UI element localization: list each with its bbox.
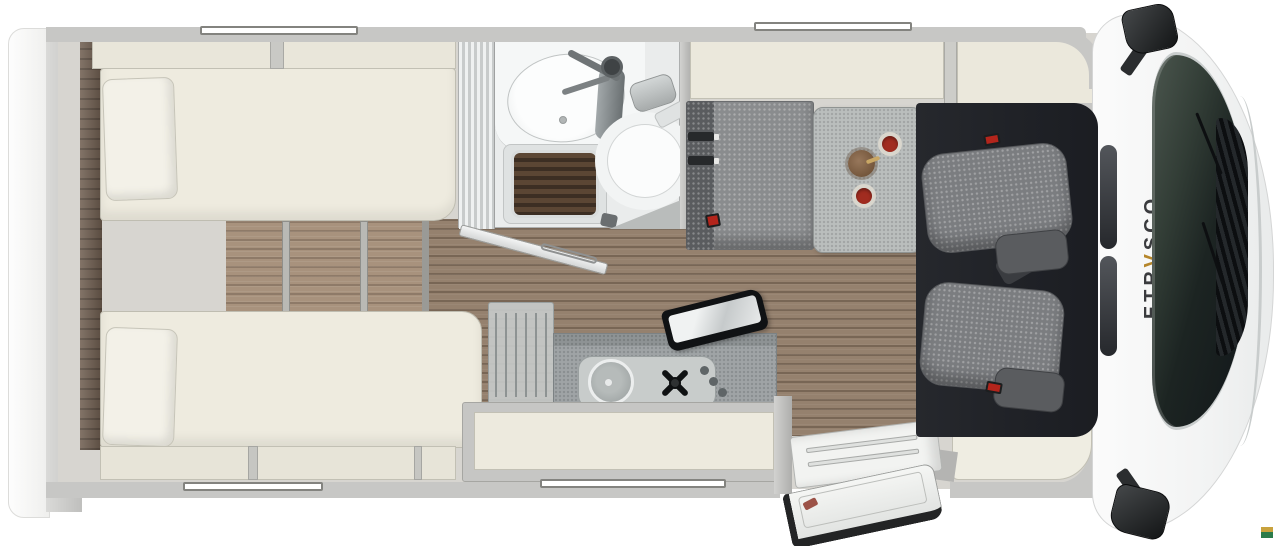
seatbelt-strap-2 xyxy=(688,156,714,165)
bathroom xyxy=(458,33,680,228)
burner-center xyxy=(669,377,681,389)
faucet-head xyxy=(601,56,623,78)
front-trim-line xyxy=(1240,96,1262,446)
red-cup-1 xyxy=(882,136,898,152)
corner-badge xyxy=(1261,527,1273,538)
overhead-locker-dinette xyxy=(690,33,944,99)
sink-drain xyxy=(604,378,613,387)
window-top-bedroom xyxy=(200,26,358,35)
toilet-lid xyxy=(607,124,683,198)
kitchen-dish-rack xyxy=(488,302,554,406)
pillow-bottom-bed xyxy=(102,327,178,447)
passenger-headrest xyxy=(994,228,1070,275)
wooden-bowl xyxy=(848,150,875,177)
burner-knob-1 xyxy=(700,366,709,375)
burner-knob-3 xyxy=(718,388,727,397)
driver-headrest xyxy=(992,366,1066,413)
bedroom-steps-floor xyxy=(226,221,428,312)
seatbelt-clip-1 xyxy=(714,134,719,140)
shower-grate xyxy=(511,150,599,218)
basin-drain xyxy=(559,116,567,124)
step-edge-wall xyxy=(422,221,429,312)
cab-roof-trim-2 xyxy=(1100,256,1117,356)
bench-belt-buckle xyxy=(705,213,721,228)
cab-roof-trim-1 xyxy=(1100,145,1117,249)
motorhome-floorplan: ETRVSCO xyxy=(0,0,1280,546)
entry-wall-stub xyxy=(774,396,792,494)
window-kitchen-groove xyxy=(540,479,726,488)
seatbelt-strap-1 xyxy=(688,132,714,141)
step-divider-right xyxy=(360,221,368,312)
sideboard-bedroom xyxy=(100,446,456,480)
sideboard-divider-1 xyxy=(248,446,258,480)
sideboard-divider-2 xyxy=(414,446,422,480)
seatbelt-clip-2 xyxy=(714,158,719,164)
step-groove-2 xyxy=(808,449,920,468)
rear-body-cap xyxy=(8,28,50,518)
dish-rack-pins xyxy=(495,313,547,397)
wardrobe-panel xyxy=(80,36,102,450)
window-top-dinette xyxy=(754,22,912,31)
shower-pleated-door xyxy=(459,34,495,229)
dinette-table xyxy=(813,107,927,253)
locker-divider xyxy=(270,40,284,69)
burner-knob-2 xyxy=(709,377,718,386)
kitchen-sideboard-front xyxy=(474,412,774,470)
window-bottom-bedroom xyxy=(183,482,323,491)
pillow-top-bed xyxy=(102,77,178,201)
toilet-brush xyxy=(600,212,618,228)
corner-badge-bottom xyxy=(1261,532,1273,538)
gas-burner xyxy=(656,364,694,402)
step-divider-left xyxy=(282,221,290,312)
red-cup-2 xyxy=(856,188,872,204)
